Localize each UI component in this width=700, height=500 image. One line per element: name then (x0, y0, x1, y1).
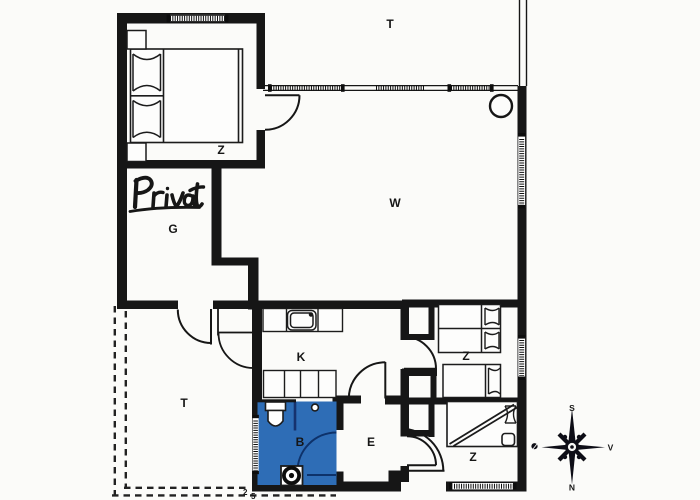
svg-text:V: V (608, 443, 614, 453)
svg-text:Z: Z (217, 143, 224, 157)
svg-text:N: N (569, 483, 575, 493)
svg-text:S: S (569, 403, 575, 413)
svg-text:W: W (389, 196, 401, 210)
svg-text:5: 5 (251, 492, 256, 500)
svg-text:2: 2 (243, 488, 248, 497)
svg-text:K: K (297, 350, 306, 364)
svg-text:B: B (296, 435, 305, 449)
svg-text:T: T (180, 396, 188, 410)
svg-text:Z: Z (462, 349, 469, 363)
svg-text:G: G (168, 222, 177, 236)
svg-text:Z: Z (469, 450, 476, 464)
svg-text:E: E (367, 435, 375, 449)
svg-text:T: T (386, 17, 394, 31)
